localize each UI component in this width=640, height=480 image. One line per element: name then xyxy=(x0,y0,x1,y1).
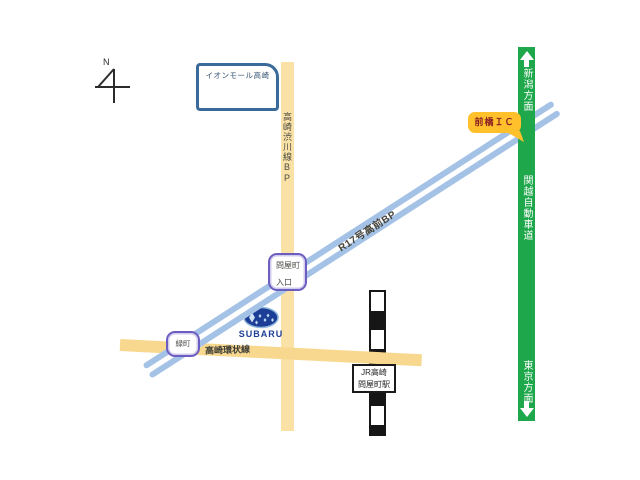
jr-station-line1: JR高崎 xyxy=(354,367,394,379)
r17-bypass-road: R17号高前BP xyxy=(142,101,561,379)
midoricho-label: 緑町 xyxy=(168,333,198,354)
r17-bypass-label: R17号高前BP xyxy=(335,206,399,254)
maebashi-ic-callout: 前橋ＩＣ xyxy=(468,112,521,133)
aeon-mall-label: イオンモール高崎 xyxy=(199,70,276,81)
subaru-wordmark: SUBARU xyxy=(236,329,286,339)
tokyo-direction-label: 東京方面 xyxy=(519,360,534,404)
jr-station-box: JR高崎 問屋町駅 xyxy=(352,364,396,393)
aeon-mall-box: イオンモール高崎 xyxy=(196,63,279,111)
toiyamachi-entrance-box: 問屋町 入口 xyxy=(268,253,307,291)
south-direction-arrow-icon xyxy=(520,401,534,417)
toiyamachi-entrance-line2: 入口 xyxy=(276,277,305,288)
toiyamachi-entrance-line1: 問屋町 xyxy=(276,260,305,271)
jr-station-line2: 問屋町駅 xyxy=(354,379,394,391)
kanetsu-expressway-road: 新潟方面 関越自動車道 東京方面 xyxy=(518,47,535,421)
maebashi-ic-label: 前橋ＩＣ xyxy=(468,112,521,133)
shibukawa-bp-road-label: 高崎渋川線BP xyxy=(281,112,294,184)
ring-road-label: 高崎環状線 xyxy=(205,342,250,357)
niigata-direction-label: 新潟方面 xyxy=(519,68,534,112)
kanetsu-expressway-label: 関越自動車道 xyxy=(519,175,534,241)
north-direction-arrow-icon xyxy=(520,51,534,67)
maebashi-ic-callout-tail xyxy=(502,131,526,144)
north-arrow-icon xyxy=(92,56,136,106)
midoricho-box: 緑町 xyxy=(166,331,200,357)
